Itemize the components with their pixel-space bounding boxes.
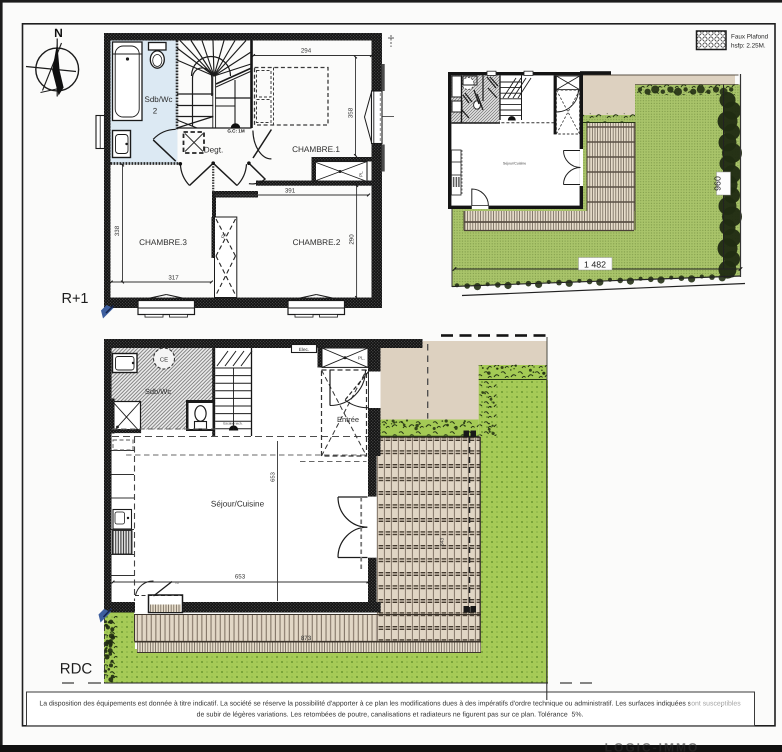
svg-text:Escalier tech.: Escalier tech. (223, 422, 242, 426)
svg-text:Degt.: Degt. (204, 146, 224, 155)
svg-text:2: 2 (153, 107, 158, 116)
svg-text:317: 317 (168, 274, 179, 281)
svg-text:290: 290 (349, 234, 356, 245)
svg-text:Séjour/Cuisine: Séjour/Cuisine (211, 500, 265, 509)
svg-text:873: 873 (301, 635, 312, 642)
svg-text:de subir de légères variations: de subir de légères variations. Les reto… (197, 711, 584, 719)
svg-text:PL.: PL. (358, 356, 365, 361)
svg-text:G.C: 1M: G.C: 1M (227, 129, 245, 134)
svg-text:VR: VR (175, 581, 179, 585)
svg-text:653: 653 (235, 574, 246, 581)
svg-text:Séjour/Cuisine: Séjour/Cuisine (503, 162, 526, 166)
svg-text:LOGIC-IMMO: LOGIC-IMMO (605, 741, 700, 752)
svg-text:La disposition des équipements: La disposition des équipements est donné… (39, 700, 741, 708)
svg-text:960: 960 (713, 176, 723, 191)
svg-text:358: 358 (348, 107, 355, 118)
svg-text:CHAMBRE.3: CHAMBRE.3 (139, 238, 187, 247)
svg-text:RDC: RDC (60, 661, 93, 678)
svg-text:Elec.: Elec. (299, 347, 309, 352)
svg-text:Sdb/Wc: Sdb/Wc (144, 95, 172, 104)
svg-text:Faux Plafond: Faux Plafond (731, 34, 769, 41)
svg-text:Sdb/Wc: Sdb/Wc (145, 387, 172, 396)
svg-text:CHAMBRE.2: CHAMBRE.2 (293, 238, 341, 247)
svg-text:Entrée: Entrée (337, 415, 359, 424)
svg-text:391: 391 (285, 187, 296, 194)
svg-text:PL: PL (359, 171, 364, 177)
svg-text:653: 653 (270, 472, 277, 482)
svg-text:N: N (54, 26, 63, 40)
svg-text:294: 294 (301, 48, 312, 55)
svg-text:543: 543 (440, 538, 446, 547)
svg-text:1 482: 1 482 (584, 259, 606, 269)
svg-text:338: 338 (114, 225, 121, 236)
svg-text:hsfp: 2.25M.: hsfp: 2.25M. (731, 43, 766, 50)
svg-text:R+1: R+1 (61, 291, 88, 307)
svg-text:CHAMBRE.1: CHAMBRE.1 (292, 145, 340, 154)
svg-text:CE: CE (160, 357, 168, 364)
